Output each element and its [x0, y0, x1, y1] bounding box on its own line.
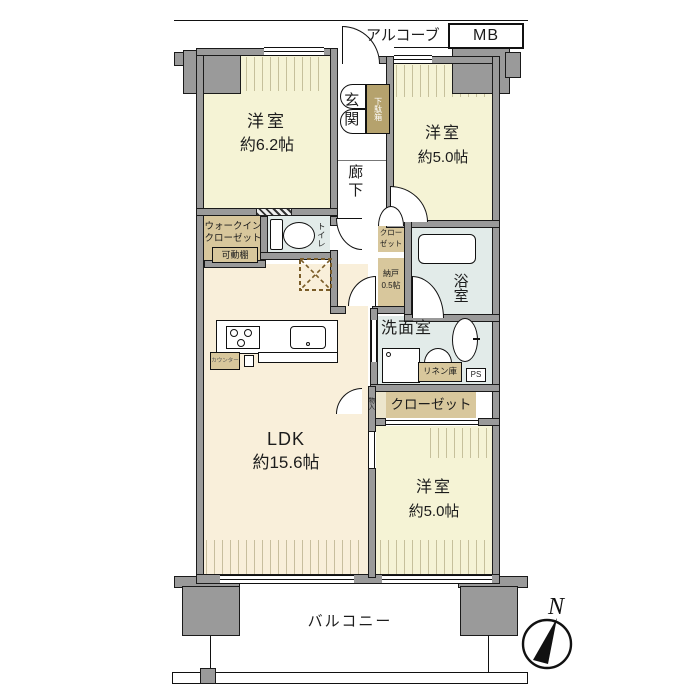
bedroom3-hatch-top	[430, 428, 488, 458]
alcove-boundary-line	[394, 47, 448, 48]
closet2-label: クローゼット	[386, 392, 476, 418]
pillar-bottom-right	[460, 586, 518, 636]
bathroom-label: 浴室	[448, 264, 472, 312]
site-boundary-line	[174, 20, 528, 21]
bathtub	[418, 234, 476, 264]
pillar-bottom-left	[182, 586, 240, 636]
wic-shelf-label: 可動棚	[212, 247, 258, 263]
closet-mid-line2: ゼット	[378, 239, 404, 250]
bedroom2-name: 洋室	[394, 124, 492, 144]
alcove-label: アルコーブ	[366, 27, 440, 44]
wall-closet2-bottom-b	[478, 418, 500, 426]
wall-bedroom1-entrance	[330, 48, 338, 216]
meter-box-label: MB	[448, 23, 524, 49]
pillar-top-left	[183, 50, 241, 94]
storage-small-label: 物入	[364, 390, 376, 416]
shoe-cabinet-label: 下駄箱	[368, 86, 388, 132]
entrance-label: 玄関	[342, 92, 359, 168]
wall-ldk-entry-a	[330, 306, 346, 314]
washroom-sink-faucet	[473, 338, 480, 340]
bedroom1-closet-folding-door	[256, 208, 292, 216]
svg-text:N: N	[547, 594, 566, 620]
washroom-sliding-door	[371, 320, 377, 362]
wall-ldk-bedroom3-b	[368, 468, 376, 578]
wic-label-line1: ウォークイン	[204, 221, 262, 233]
compass-icon: N	[516, 590, 586, 676]
stove-burner-1	[230, 329, 238, 337]
toilet-label: トイレ	[314, 218, 327, 252]
wall-left	[196, 48, 204, 580]
kitchen-counter-post	[244, 355, 254, 367]
linen-label: リネン庫	[418, 362, 462, 382]
bedroom1-name: 洋室	[204, 112, 330, 132]
balcony-label: バルコニー	[280, 612, 420, 632]
ldk-balcony-window	[220, 575, 354, 584]
bedroom3-name: 洋室	[376, 478, 492, 498]
balcony-railing-post	[200, 668, 216, 684]
kitchen-counter-return	[258, 352, 338, 363]
closet-mid-door-left	[378, 206, 391, 226]
stove-burner-2	[244, 329, 252, 337]
toilet-bowl	[283, 222, 315, 249]
wic-label-line2: クローゼット	[204, 233, 262, 245]
pillar-top-right-tab	[505, 52, 521, 78]
pillar-top-right	[452, 46, 510, 94]
toilet-tank	[270, 219, 283, 250]
closet2-sliding-door	[386, 420, 478, 425]
hallway-label: 廊下	[346, 164, 363, 214]
bedroom3-sliding-door	[368, 432, 375, 468]
storeroom-size: 0.5帖	[378, 280, 404, 291]
floorplan: MB アルコーブ バルコニー N 洋室 約6.2帖 玄関 下駄箱 廊下 洋室 約…	[0, 0, 700, 700]
washroom-label: 洗面室	[381, 320, 432, 338]
ps-label: PS	[466, 368, 486, 382]
kitchen-sink-drain	[306, 342, 310, 346]
bedroom1-size: 約6.2帖	[204, 136, 330, 156]
bedroom1-top-window	[264, 47, 324, 56]
ldk-hatch	[206, 540, 364, 574]
bedroom2-size: 約5.0帖	[394, 148, 492, 168]
bedroom3-balcony-window	[382, 575, 492, 584]
washroom-sink	[452, 318, 478, 362]
ldk-name: LDK	[204, 428, 368, 450]
ldk-size: 約15.6帖	[204, 452, 368, 474]
balcony-divider-right	[488, 636, 489, 674]
stove-burner-3	[237, 339, 245, 347]
bedroom2-top-window	[394, 55, 432, 64]
bedroom3-hatch-bottom	[380, 540, 490, 574]
toilet-door-arc	[336, 218, 362, 250]
washing-machine-knob	[386, 352, 391, 357]
wall-washroom-bottom	[370, 384, 500, 392]
closet-mid-line1: クロー	[378, 228, 404, 239]
storeroom-name: 納戸	[378, 268, 404, 279]
refrigerator-space-icon	[298, 257, 333, 292]
bedroom3-size: 約5.0帖	[376, 502, 492, 522]
balcony-railing	[172, 672, 528, 684]
kitchen-counter-label: カウンター	[210, 352, 240, 370]
